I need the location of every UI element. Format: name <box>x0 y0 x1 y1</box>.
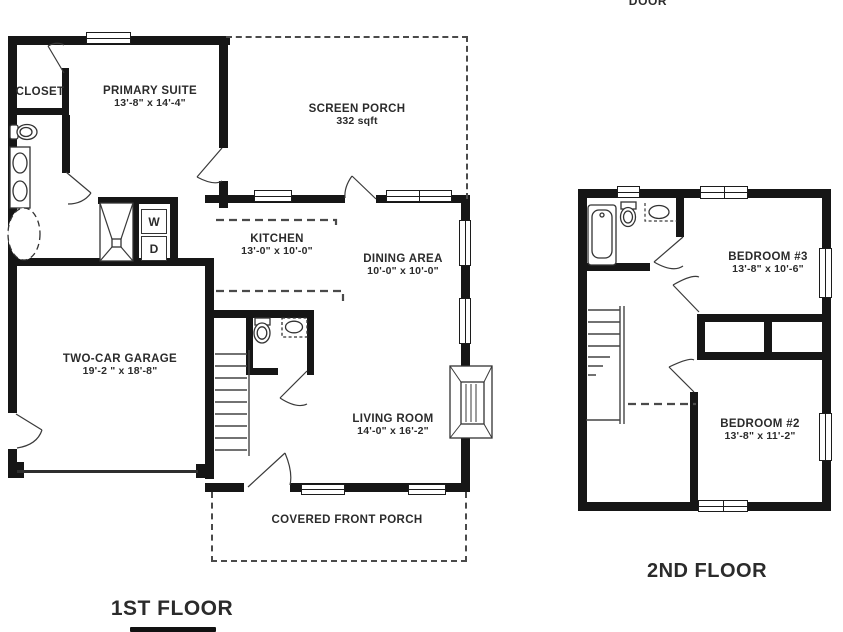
wall-segment <box>697 314 822 322</box>
room-dims: 13'-0" x 10'-0" <box>241 246 313 258</box>
door-label: DOOR <box>629 0 667 8</box>
kitchen-counter-outline <box>216 220 336 229</box>
window <box>819 248 832 298</box>
wall-segment <box>8 36 17 478</box>
room-label-bedroom2: BEDROOM #2 13'-8" x 11'-2" <box>720 418 800 443</box>
window <box>617 186 640 198</box>
washer-box: W <box>141 209 167 234</box>
room-label-garage: TWO-CAR GARAGE 19'-2 " x 18'-8" <box>63 353 177 378</box>
stairs <box>215 350 249 456</box>
room-dims: 14'-0" x 16'-2" <box>352 426 433 438</box>
wall-segment <box>697 352 822 360</box>
wall-segment <box>697 314 705 360</box>
room-name: CLOSET <box>16 86 65 99</box>
sink-fixture <box>645 203 677 221</box>
window <box>698 500 748 512</box>
shower-fixture <box>100 203 133 261</box>
second-floor-title: 2ND FLOOR <box>647 560 767 583</box>
front-porch-outline <box>211 492 467 562</box>
window <box>301 484 345 495</box>
room-name: KITCHEN <box>241 233 313 246</box>
window <box>408 484 446 495</box>
wall-segment <box>8 258 214 266</box>
window <box>819 413 832 461</box>
room-name: DINING AREA <box>363 253 442 266</box>
room-label-front-porch: COVERED FRONT PORCH <box>271 514 422 527</box>
wall-segment <box>196 464 214 478</box>
wall-segment <box>213 310 314 318</box>
room-name: COVERED FRONT PORCH <box>271 514 422 527</box>
room-dims: 13'-8" x 11'-2" <box>720 431 800 443</box>
wall-segment <box>246 318 253 375</box>
kitchen-counter-outline <box>216 291 343 301</box>
room-name: SCREEN PORCH <box>309 103 406 116</box>
room-label-living-room: LIVING ROOM 14'-0" x 16'-2" <box>352 413 433 438</box>
room-dims: 13'-8" x 14'-4" <box>103 98 197 110</box>
wall-segment <box>690 392 698 502</box>
room-label-screen-porch: SCREEN PORCH 332 sqft <box>309 103 406 128</box>
wall-segment <box>822 189 831 511</box>
window <box>700 186 748 199</box>
sink-fixture <box>282 318 307 337</box>
garage-door-line <box>17 470 198 473</box>
wall-segment <box>764 322 772 352</box>
toilet-fixture <box>254 318 270 343</box>
wall-segment <box>676 189 684 237</box>
floor-plan-canvas: DOOR <box>0 0 843 632</box>
window <box>459 220 471 266</box>
room-label-primary-suite: PRIMARY SUITE 13'-8" x 14'-4" <box>103 85 197 110</box>
room-name: TWO-CAR GARAGE <box>63 353 177 366</box>
room-name: BEDROOM #2 <box>720 418 800 431</box>
wall-segment <box>62 115 70 173</box>
room-label-kitchen: KITCHEN 13'-0" x 10'-0" <box>241 233 313 258</box>
wall-segment <box>307 318 314 375</box>
fireplace-fixture <box>450 366 492 438</box>
toilet-fixture <box>621 202 637 227</box>
wall-segment <box>205 258 214 479</box>
room-name: BEDROOM #3 <box>728 251 808 264</box>
first-floor-title: 1ST FLOOR <box>111 597 233 621</box>
wall-segment <box>8 108 69 115</box>
room-label-dining-area: DINING AREA 10'-0" x 10'-0" <box>363 253 442 278</box>
window <box>459 298 471 344</box>
room-name: LIVING ROOM <box>352 413 433 426</box>
wall-segment <box>170 197 178 263</box>
washer-label: W <box>148 215 159 229</box>
room-dims: 10'-0" x 10'-0" <box>363 266 442 278</box>
room-dims: 13'-8" x 10'-6" <box>728 264 808 276</box>
wall-segment <box>578 263 650 271</box>
window <box>386 190 452 202</box>
door-swing <box>654 237 699 392</box>
room-label-closet: CLOSET <box>16 86 65 99</box>
bathtub-fixture <box>588 205 616 265</box>
room-dims: 19'-2 " x 18'-8" <box>63 366 177 378</box>
wall-segment <box>246 368 278 375</box>
stairs <box>586 306 624 424</box>
wall-segment <box>133 197 139 263</box>
window <box>254 190 292 202</box>
dryer-box: D <box>141 236 167 261</box>
cropped-text-artifact <box>130 627 216 632</box>
room-area: 332 sqft <box>309 116 406 128</box>
window <box>86 32 131 44</box>
dryer-label: D <box>150 242 159 256</box>
room-name: PRIMARY SUITE <box>103 85 197 98</box>
wall-segment <box>578 189 587 511</box>
door-opening <box>7 413 18 449</box>
room-label-bedroom3: BEDROOM #3 13'-8" x 10'-6" <box>728 251 808 276</box>
